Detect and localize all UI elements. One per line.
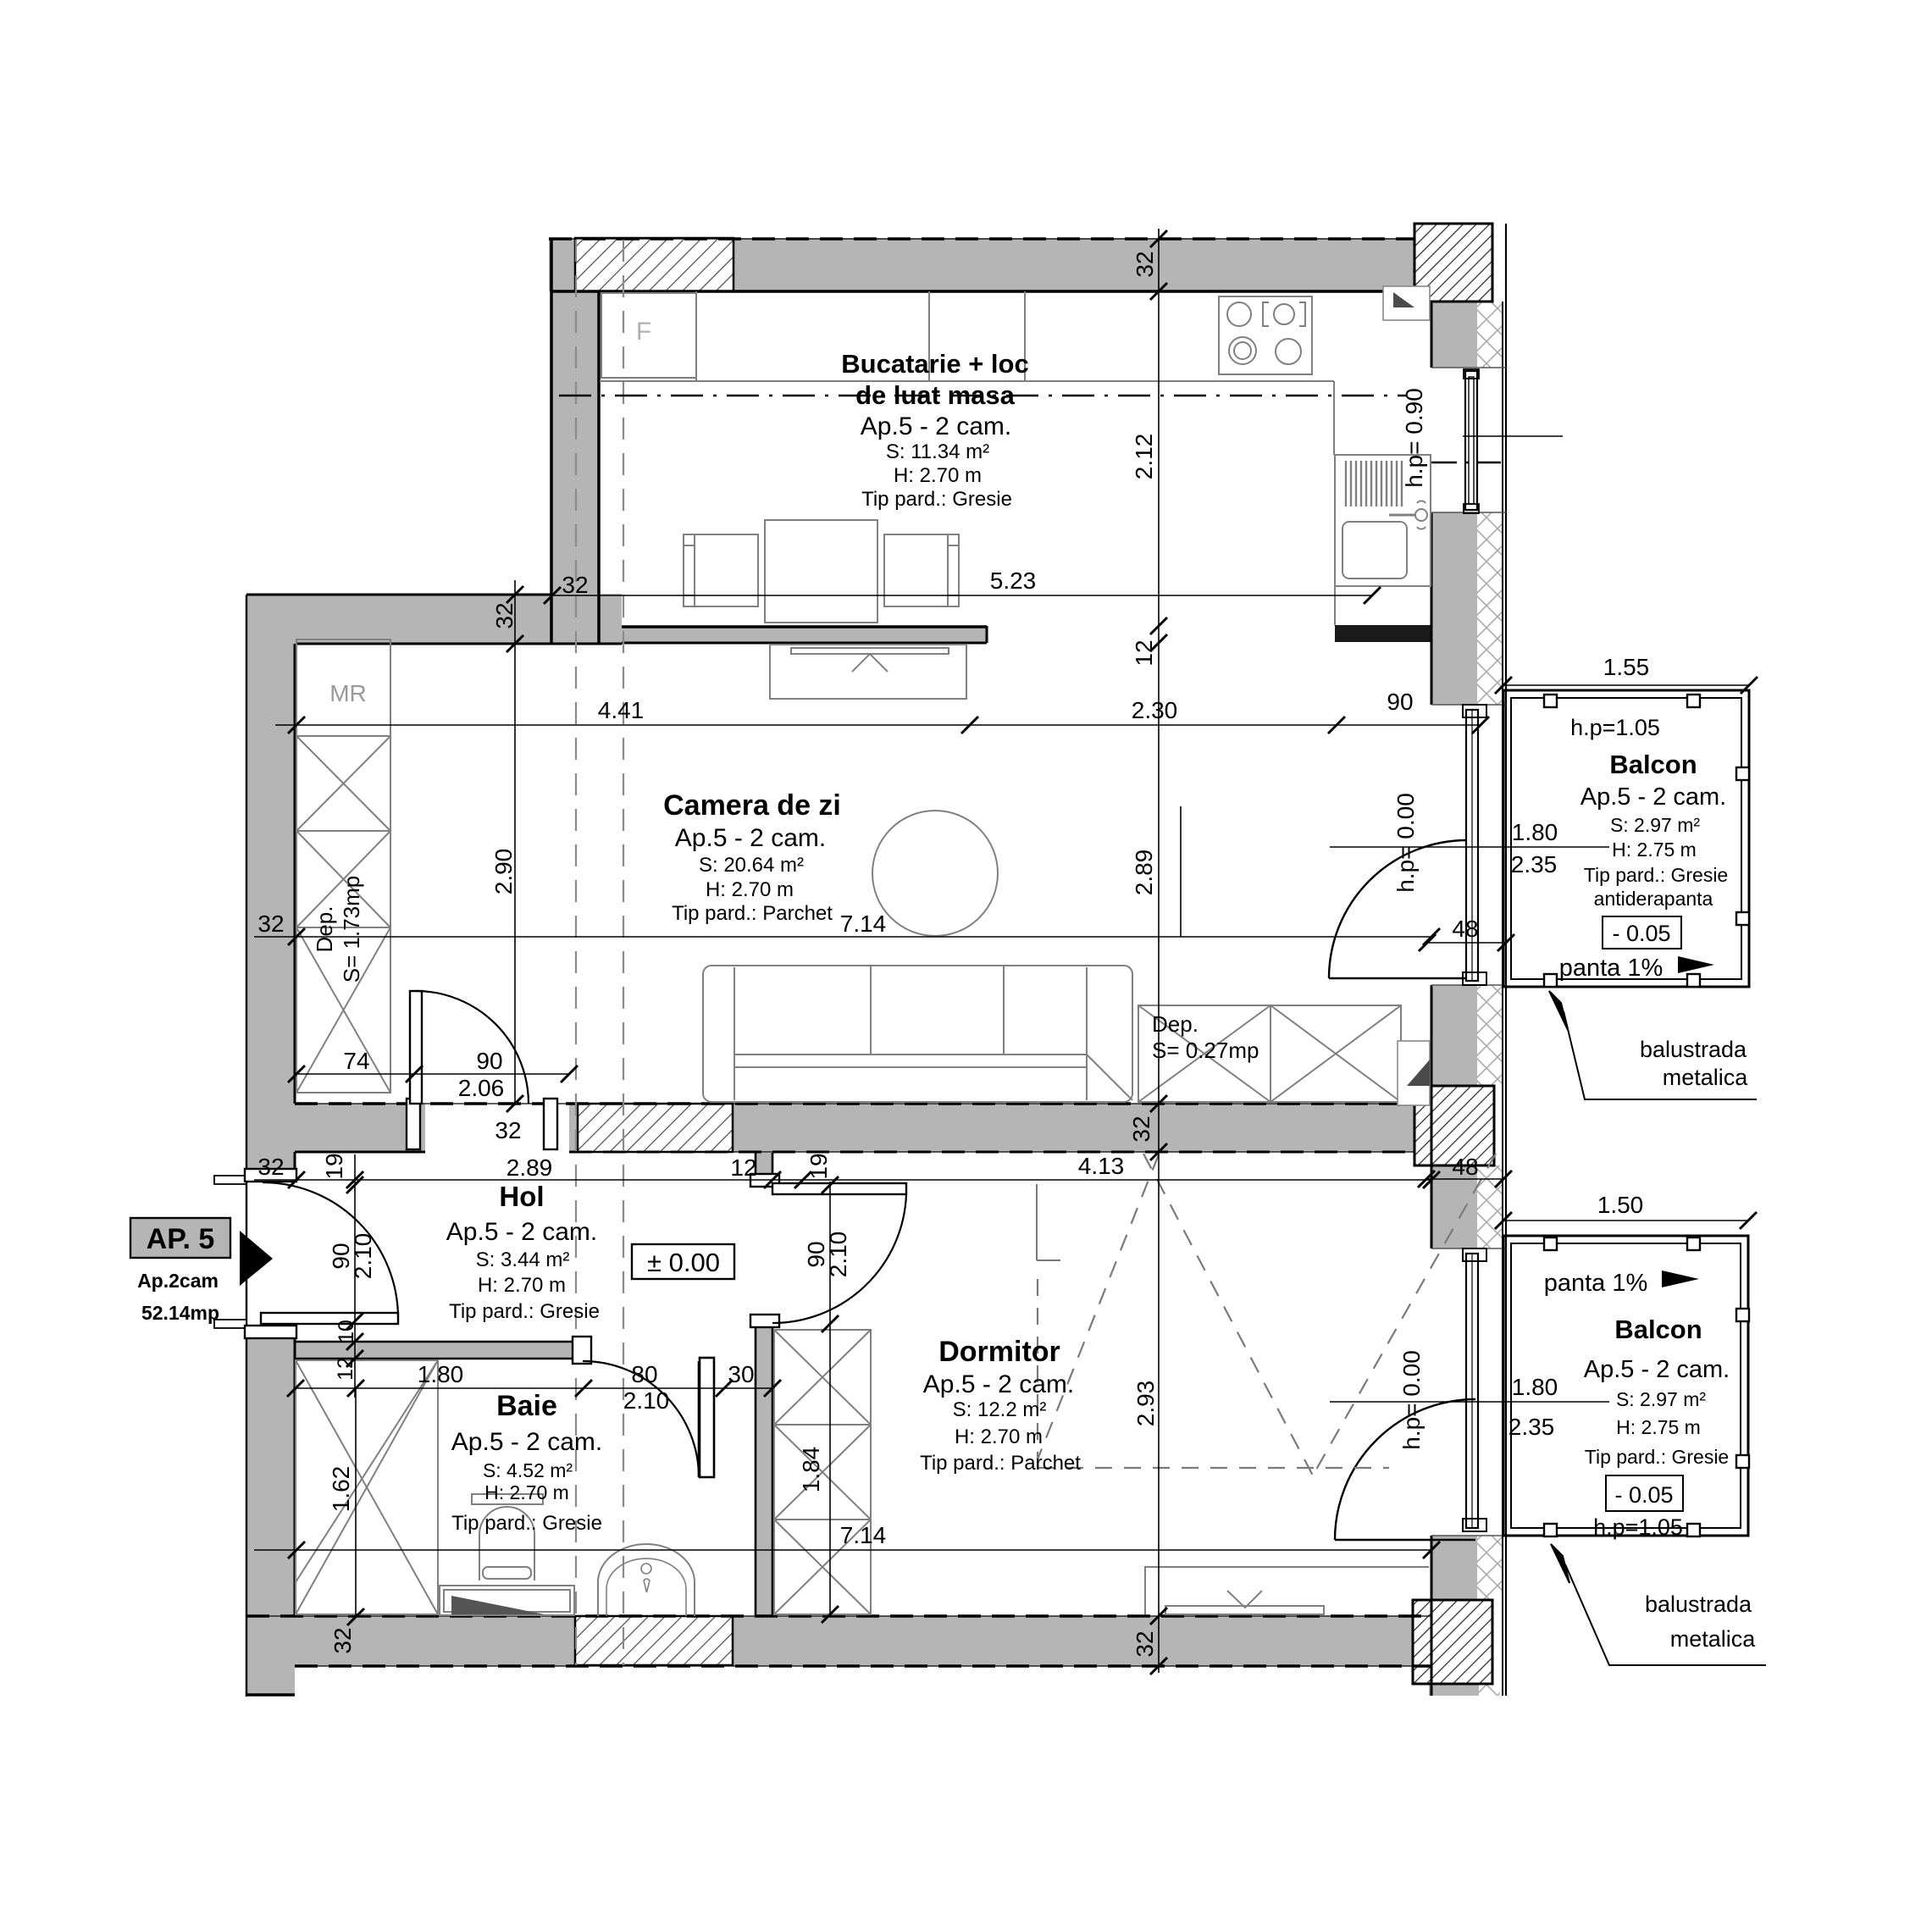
svg-text:h.p=1.05: h.p=1.05: [1570, 715, 1660, 740]
svg-text:1.62: 1.62: [328, 1466, 354, 1513]
svg-text:12: 12: [1131, 639, 1157, 666]
svg-text:48: 48: [1452, 1154, 1478, 1180]
svg-text:32: 32: [1132, 251, 1158, 277]
svg-text:1.80: 1.80: [418, 1361, 464, 1387]
svg-text:4.13: 4.13: [1078, 1153, 1125, 1179]
svg-text:Ap.5 - 2 cam.: Ap.5 - 2 cam.: [1584, 1356, 1730, 1383]
svg-text:2.06: 2.06: [458, 1075, 505, 1101]
svg-text:Tip pard.: Gresie: Tip pard.: Gresie: [451, 1512, 602, 1535]
svg-text:30: 30: [728, 1361, 754, 1387]
svg-text:52.14mp: 52.14mp: [141, 1302, 219, 1324]
svg-text:32: 32: [257, 1154, 284, 1180]
svg-text:h.p= 0.00: h.p= 0.00: [1392, 793, 1419, 893]
svg-text:S: 3.44 m²: S: 3.44 m²: [476, 1248, 570, 1271]
svg-text:Ap.5 - 2 cam.: Ap.5 - 2 cam.: [923, 1370, 1074, 1398]
svg-text:Tip pard.: Gresie: Tip pard.: Gresie: [861, 488, 1012, 511]
svg-text:- 0.05: - 0.05: [1612, 921, 1670, 946]
svg-text:Tip pard.: Gresie: Tip pard.: Gresie: [1585, 1446, 1729, 1468]
svg-text:balustrada: balustrada: [1645, 1592, 1752, 1617]
svg-text:32: 32: [495, 1117, 521, 1143]
svg-text:h.p= 0.00: h.p= 0.00: [1398, 1350, 1425, 1450]
svg-text:12: 12: [334, 1357, 357, 1381]
svg-text:1.55: 1.55: [1603, 654, 1650, 680]
svg-text:S: 11.34 m²: S: 11.34 m²: [886, 440, 989, 463]
svg-text:H: 2.70 m: H: 2.70 m: [478, 1274, 566, 1297]
svg-text:2.30: 2.30: [1132, 697, 1178, 723]
svg-text:Camera de zi: Camera de zi: [663, 789, 841, 822]
svg-text:2.89: 2.89: [1131, 850, 1157, 896]
svg-text:Ap.5 - 2 cam.: Ap.5 - 2 cam.: [861, 412, 1011, 440]
svg-text:S: 20.64 m²: S: 20.64 m²: [699, 854, 804, 877]
svg-text:4.41: 4.41: [598, 697, 645, 723]
svg-text:Ap.5 - 2 cam.: Ap.5 - 2 cam.: [451, 1428, 602, 1456]
svg-text:Tip pard.: Gresie: Tip pard.: Gresie: [449, 1300, 600, 1323]
svg-text:1.80: 1.80: [1512, 1374, 1558, 1400]
svg-text:7.14: 7.14: [840, 1522, 887, 1548]
svg-text:F: F: [636, 318, 651, 346]
svg-text:H: 2.70 m: H: 2.70 m: [955, 1425, 1043, 1448]
svg-text:19: 19: [805, 1153, 832, 1179]
svg-text:Tip pard.: Parchet: Tip pard.: Parchet: [920, 1452, 1081, 1475]
svg-text:10: 10: [335, 1320, 358, 1343]
svg-text:S= 0.27mp: S= 0.27mp: [1152, 1038, 1259, 1063]
svg-text:90: 90: [476, 1048, 502, 1074]
svg-text:19: 19: [321, 1153, 347, 1179]
svg-text:metalica: metalica: [1663, 1065, 1749, 1090]
svg-text:metalica: metalica: [1670, 1626, 1757, 1652]
svg-text:2.12: 2.12: [1131, 434, 1157, 480]
svg-text:32: 32: [1132, 1630, 1158, 1657]
svg-text:H: 2.70 m: H: 2.70 m: [894, 464, 982, 487]
svg-text:7.14: 7.14: [840, 911, 887, 937]
svg-text:2.10: 2.10: [623, 1387, 670, 1414]
svg-text:12: 12: [730, 1154, 756, 1181]
svg-text:S: 4.52 m²: S: 4.52 m²: [483, 1459, 573, 1481]
svg-text:panta 1%: panta 1%: [1544, 1270, 1648, 1297]
svg-text:Tip pard.: Parchet: Tip pard.: Parchet: [672, 902, 833, 925]
svg-text:Balcon: Balcon: [1609, 750, 1697, 779]
svg-text:panta 1%: panta 1%: [1559, 955, 1664, 982]
svg-text:S: 2.97 m²: S: 2.97 m²: [1616, 1388, 1706, 1410]
svg-text:Bucatarie + loc: Bucatarie + loc: [841, 349, 1028, 379]
svg-text:32: 32: [257, 911, 284, 937]
svg-text:2.35: 2.35: [1509, 1414, 1555, 1440]
svg-text:balustrada: balustrada: [1640, 1037, 1747, 1062]
svg-text:32: 32: [1128, 1115, 1154, 1142]
svg-text:± 0.00: ± 0.00: [647, 1248, 720, 1277]
svg-text:- 0.05: - 0.05: [1614, 1482, 1673, 1508]
svg-text:2.89: 2.89: [507, 1154, 553, 1181]
svg-text:h.p= 0.90: h.p= 0.90: [1401, 388, 1427, 488]
svg-text:1.50: 1.50: [1597, 1192, 1644, 1218]
svg-text:80: 80: [631, 1361, 657, 1387]
svg-text:32: 32: [491, 602, 518, 628]
svg-text:90: 90: [1387, 689, 1413, 715]
svg-text:antiderapanta: antiderapanta: [1594, 888, 1713, 910]
svg-text:Dormitor: Dormitor: [938, 1336, 1060, 1368]
svg-text:Ap.2cam: Ap.2cam: [137, 1270, 219, 1292]
svg-text:Ap.5 - 2 cam.: Ap.5 - 2 cam.: [446, 1218, 597, 1246]
svg-text:H: 2.75 m: H: 2.75 m: [1612, 839, 1697, 861]
svg-text:S= 1.73mp: S= 1.73mp: [339, 876, 364, 983]
svg-text:74: 74: [343, 1048, 369, 1074]
svg-text:Dep.: Dep.: [312, 906, 337, 953]
svg-text:de luat masa: de luat masa: [855, 380, 1016, 410]
svg-text:Balcon: Balcon: [1614, 1315, 1702, 1344]
svg-text:2.10: 2.10: [825, 1232, 851, 1278]
svg-text:Ap.5 - 2 cam.: Ap.5 - 2 cam.: [675, 824, 826, 852]
svg-text:5.23: 5.23: [990, 567, 1037, 594]
svg-text:Baie: Baie: [496, 1390, 557, 1422]
svg-text:1.80: 1.80: [1512, 819, 1558, 845]
svg-text:Ap.5 - 2 cam.: Ap.5 - 2 cam.: [1580, 783, 1726, 811]
svg-text:2.90: 2.90: [490, 849, 517, 895]
svg-text:1.84: 1.84: [798, 1447, 824, 1493]
svg-text:S: 2.97 m²: S: 2.97 m²: [1610, 814, 1700, 836]
svg-text:H: 2.75 m: H: 2.75 m: [1616, 1416, 1701, 1438]
svg-text:Tip pard.: Gresie: Tip pard.: Gresie: [1584, 864, 1728, 886]
svg-text:H: 2.70 m: H: 2.70 m: [706, 878, 794, 901]
svg-text:MR: MR: [329, 680, 367, 706]
svg-text:32: 32: [562, 572, 588, 598]
svg-text:AP. 5: AP. 5: [147, 1223, 215, 1255]
svg-text:2.93: 2.93: [1132, 1381, 1159, 1427]
svg-text:2.10: 2.10: [350, 1233, 376, 1280]
svg-text:H: 2.70 m: H: 2.70 m: [484, 1481, 569, 1503]
svg-text:32: 32: [329, 1627, 356, 1653]
svg-text:Dep.: Dep.: [1152, 1011, 1199, 1037]
svg-text:h.p=1.05: h.p=1.05: [1593, 1514, 1683, 1540]
svg-text:48: 48: [1452, 916, 1478, 942]
svg-text:2.35: 2.35: [1511, 851, 1558, 877]
svg-text:Hol: Hol: [499, 1181, 544, 1212]
svg-text:S: 12.2 m²: S: 12.2 m²: [953, 1398, 1047, 1421]
